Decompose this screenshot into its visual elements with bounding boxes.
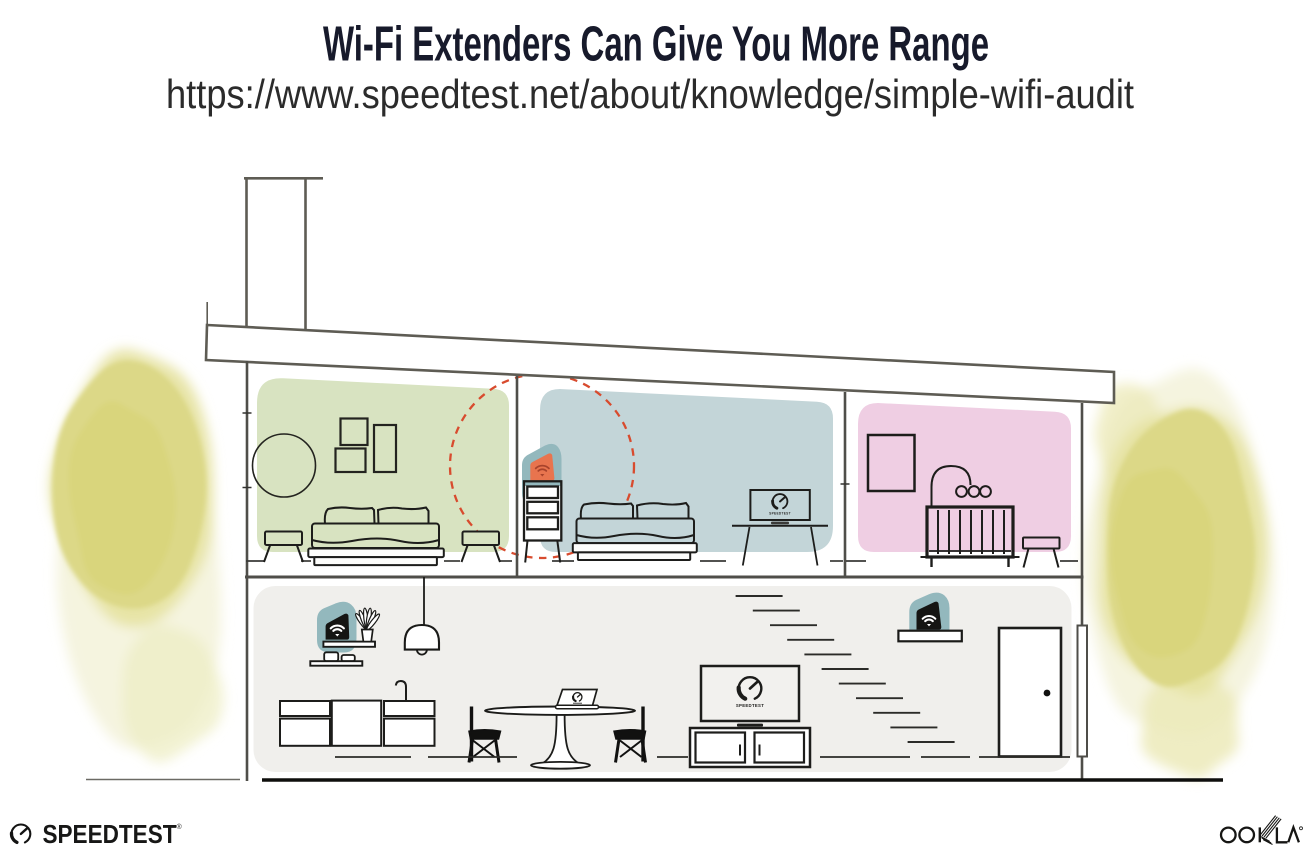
svg-text:®: ® [177,823,183,831]
svg-text:SPEEDTEST: SPEEDTEST [736,703,764,708]
svg-text:Wi-Fi Extenders Can Give You M: Wi-Fi Extenders Can Give You More Range [323,18,989,72]
svg-text:SPEEDTEST: SPEEDTEST [769,512,791,516]
svg-text:https://www.speedtest.net/abou: https://www.speedtest.net/about/knowledg… [166,71,1135,117]
svg-text:SPEEDTEST: SPEEDTEST [43,821,177,849]
